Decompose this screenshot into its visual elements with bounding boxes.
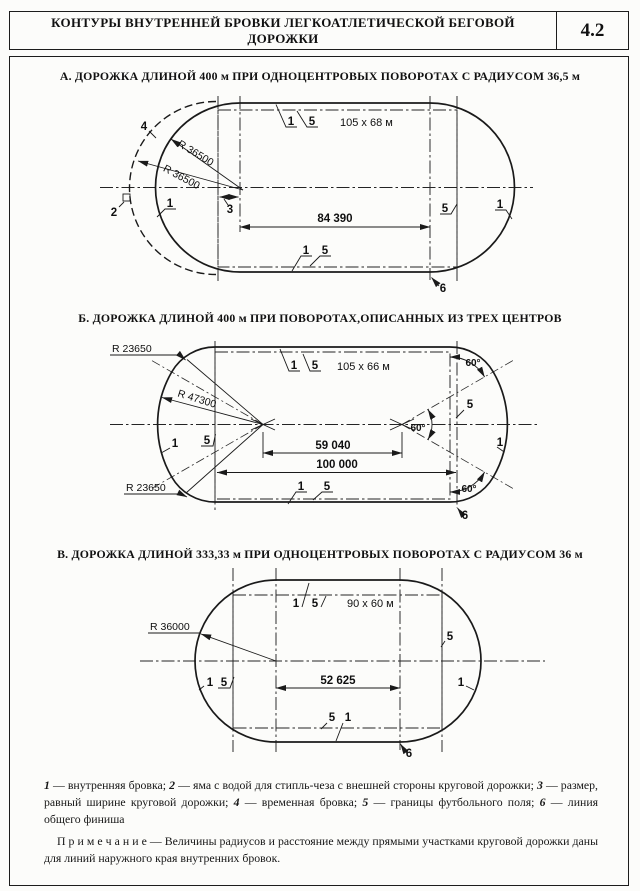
callout-1-top: 1 (276, 105, 297, 129)
callout-5-bottom: 5 (313, 481, 333, 500)
legend: 1 — внутренняя бровка; 2 — яма с водой д… (44, 777, 598, 828)
svg-text:5: 5 (322, 245, 329, 257)
angle-label-top: 60° (465, 358, 480, 369)
svg-text:1: 1 (291, 360, 298, 372)
angle-label-middle: 60° (410, 423, 425, 434)
svg-text:4: 4 (141, 121, 148, 133)
svg-text:5: 5 (204, 435, 211, 447)
football-field-boundary (233, 595, 442, 728)
page-title: КОНТУРЫ ВНУТРЕННЕЙ БРОВКИ ЛЕГКОАТЛЕТИЧЕС… (10, 12, 557, 49)
svg-text:1: 1 (288, 116, 295, 128)
callout-5-left: 5 (201, 434, 216, 447)
svg-text:5: 5 (221, 677, 228, 689)
svg-text:1: 1 (345, 712, 352, 724)
callout-1-left: 1 (162, 438, 179, 453)
dimension-straight: 100 000 (217, 459, 456, 473)
callout-5-top: 5 (312, 596, 326, 610)
callout-1-bottom: 1 (336, 712, 352, 741)
legend-num: 5 (362, 795, 368, 809)
radius-corner-top: R 23650 (110, 343, 186, 360)
dimension-centers: 59 040 (263, 432, 402, 458)
svg-text:6: 6 (462, 510, 468, 522)
svg-text:1: 1 (207, 677, 214, 689)
dimension-straight: 84 390 (240, 213, 430, 227)
callout-1-top: 1 (293, 583, 309, 610)
diagram-v: R 36000 52 625 90 x 60 м 1 5 5 1 5 (0, 562, 640, 776)
svg-text:1: 1 (167, 198, 174, 210)
legend-num: 3 (537, 778, 543, 792)
svg-text:1: 1 (497, 199, 504, 211)
callout-3: 3 (227, 204, 233, 216)
svg-text:5: 5 (312, 360, 319, 372)
svg-text:1: 1 (172, 438, 179, 450)
callout-5-bottom: 5 (321, 712, 336, 729)
section-b-title: Б. ДОРОЖКА ДЛИНОЙ 400 м ПРИ ПОВОРОТАХ,ОП… (0, 311, 640, 326)
callout-1-right: 1 (497, 437, 504, 452)
callout-2-water-pit: 2 (111, 202, 124, 219)
callout-1-left: 1 (157, 198, 176, 217)
radius-middle: R 47300 (162, 388, 263, 425)
callout-4-temp-curb: 4 (141, 121, 156, 138)
legend-num: 6 (540, 795, 546, 809)
callout-1-right: 1 (458, 677, 474, 690)
section-a-title: А. ДОРОЖКА ДЛИНОЙ 400 м ПРИ ОДНОЦЕНТРОВЫ… (0, 69, 640, 84)
legend-num: 2 (169, 778, 175, 792)
note-label: П р и м е ч а н и е (57, 834, 147, 848)
construction-diagonals (152, 360, 513, 494)
callout-5-left: 5 (218, 677, 234, 689)
section-number: 4.2 (557, 12, 628, 49)
svg-text:6: 6 (440, 283, 446, 295)
svg-text:5: 5 (447, 631, 454, 643)
angle-label-bottom: 60° (461, 484, 476, 495)
callout-5-right: 5 (440, 203, 457, 215)
svg-text:1: 1 (298, 481, 305, 493)
legend-text: — границы футбольного поля; (373, 795, 534, 809)
callout-6-finish-line: 6 (432, 278, 447, 296)
svg-text:5: 5 (442, 203, 449, 215)
callout-5-right: 5 (456, 399, 474, 418)
callout-5-top: 5 (303, 354, 321, 372)
callout-1-left: 1 (199, 677, 214, 690)
dimension-straight: 52 625 (276, 675, 400, 688)
svg-text:R 23650: R 23650 (126, 482, 166, 494)
svg-text:5: 5 (309, 116, 316, 128)
svg-text:5: 5 (312, 598, 319, 610)
football-field-boundary (218, 110, 457, 267)
field-size-label: 105 x 66 м (337, 361, 390, 373)
svg-text:52 625: 52 625 (320, 675, 356, 687)
legend-text: — внутренняя бровка; (53, 778, 166, 792)
svg-text:100 000: 100 000 (316, 459, 358, 471)
svg-text:1: 1 (303, 245, 310, 257)
callout-5-bottom: 5 (310, 245, 331, 266)
callout-5-top: 5 (297, 111, 318, 128)
center-and-guide-lines (100, 96, 533, 284)
callout-5-right: 5 (441, 631, 454, 647)
field-size-label: 105 x 68 м (340, 117, 393, 129)
legend-num: 1 (44, 778, 50, 792)
legend-text: — яма с водой для стипль-чеза с внешней … (178, 778, 534, 792)
field-size-label: 90 x 60 м (347, 598, 394, 610)
svg-text:5: 5 (324, 481, 331, 493)
note: П р и м е ч а н и е — Величины радиусов … (44, 833, 598, 867)
page: КОНТУРЫ ВНУТРЕННЕЙ БРОВКИ ЛЕГКОАТЛЕТИЧЕС… (0, 0, 640, 891)
diagram-a: R 36500 R 36500 84 390 3 105 x 68 м 1 5 … (0, 92, 640, 304)
svg-text:6: 6 (406, 748, 412, 760)
dimension-track-width: 3 (220, 197, 239, 216)
legend-text: — временная бровка; (245, 795, 357, 809)
svg-text:R 36000: R 36000 (150, 621, 190, 633)
header: КОНТУРЫ ВНУТРЕННЕЙ БРОВКИ ЛЕГКОАТЛЕТИЧЕС… (9, 11, 629, 50)
svg-text:59 040: 59 040 (315, 440, 350, 452)
svg-text:1: 1 (293, 598, 300, 610)
svg-text:5: 5 (467, 399, 474, 411)
callout-6-finish-line: 6 (401, 744, 413, 760)
svg-text:5: 5 (329, 712, 336, 724)
diagram-b: 60° 60° 60° R 47300 R 23650 R 23650 59 0… (0, 338, 640, 536)
svg-text:1: 1 (458, 677, 465, 689)
callout-6-finish-line: 6 (458, 508, 469, 522)
svg-text:R 23650: R 23650 (112, 343, 152, 355)
water-pit (123, 194, 130, 201)
radius-label-curb: R 36500 (175, 138, 215, 169)
legend-num: 4 (234, 795, 240, 809)
svg-text:1: 1 (497, 437, 504, 449)
callout-1-bottom: 1 (288, 481, 307, 504)
section-v-title: В. ДОРОЖКА ДЛИНОЙ 333,33 м ПРИ ОДНОЦЕНТР… (0, 547, 640, 562)
radius-arrow: R 36000 (148, 621, 276, 661)
dimension-straight-value: 84 390 (317, 213, 352, 225)
svg-text:2: 2 (111, 207, 117, 219)
